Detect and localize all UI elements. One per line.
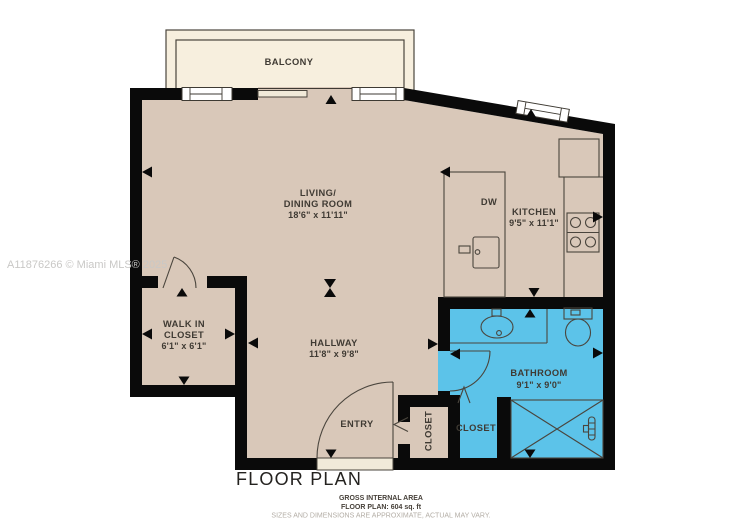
kitchen-label: KITCHEN [512, 207, 556, 217]
wall-shower-divider [497, 397, 511, 458]
wall-hallway-left [235, 385, 247, 470]
mls-watermark: A11876266 © Miami MLS® 2025 [7, 259, 167, 271]
entry-label: ENTRY [340, 419, 374, 429]
wall-hall-closet-left-lower [398, 444, 410, 458]
window-center [352, 88, 404, 101]
wall-closet-right [235, 276, 247, 397]
floor-plan-drawing: BALCONY LIVING/ DINING ROOM 18'6" x 11'1… [0, 0, 750, 530]
wall-closet-bottom [130, 385, 247, 397]
floor-plan-page: BALCONY LIVING/ DINING ROOM 18'6" x 11'1… [0, 0, 750, 530]
wall-bathroom-top [438, 297, 615, 309]
walkin-closet-label-2: CLOSET [164, 330, 204, 340]
footer-gross-area: GROSS INTERNAL AREA [339, 495, 423, 502]
bathroom-door-gap [438, 351, 450, 391]
walkin-closet-label-1: WALK IN [163, 319, 205, 329]
hallway-label: HALLWAY [310, 338, 358, 348]
hallway-dims: 11'8" x 9'8" [309, 349, 359, 359]
sliding-door-panel [258, 91, 307, 98]
wall-closet-top-a [130, 276, 158, 288]
page-title: FLOOR PLAN [236, 469, 362, 489]
living-label-1: LIVING/ [300, 188, 336, 198]
living-dims: 18'6" x 11'11" [288, 210, 348, 220]
kitchen-dims: 9'5" x 11'1" [509, 218, 559, 228]
balcony-label: BALCONY [265, 57, 314, 67]
dishwasher-label: DW [481, 197, 497, 207]
footer-disclaimer: SIZES AND DIMENSIONS ARE APPROXIMATE, AC… [271, 513, 490, 520]
living-label-2: DINING ROOM [284, 199, 352, 209]
footer-notes: GROSS INTERNAL AREA FLOOR PLAN: 604 sq. … [271, 495, 490, 520]
wall-left [130, 88, 142, 397]
bathroom-label: BATHROOM [510, 368, 567, 378]
footer-total-area: FLOOR PLAN: 604 sq. ft [341, 504, 422, 511]
hall-closet-label: CLOSET [424, 411, 434, 451]
wall-bathroom-left-upper [438, 297, 450, 351]
bath-closet-label: CLOSET [456, 423, 496, 433]
bathroom-dims: 9'1" x 9'0" [516, 380, 561, 390]
window-left [182, 88, 232, 101]
walkin-closet-dims: 6'1" x 6'1" [161, 341, 206, 351]
